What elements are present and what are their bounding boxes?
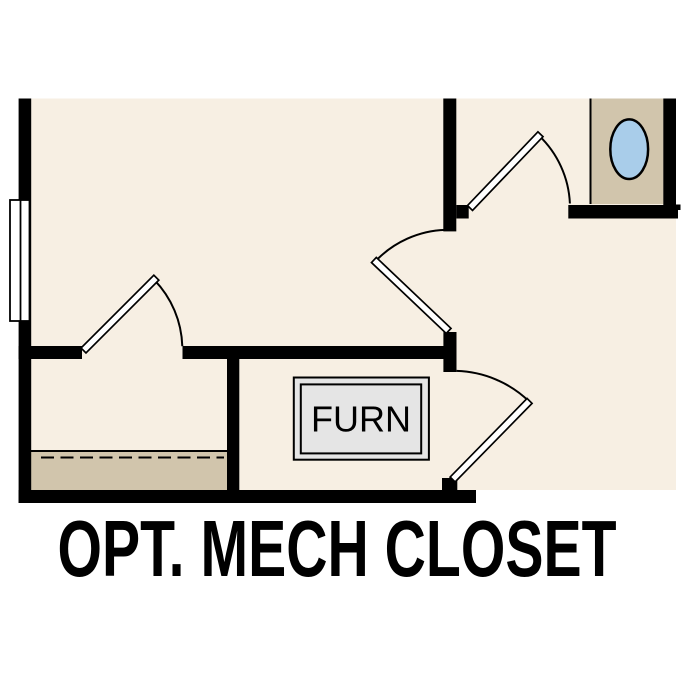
svg-text:OPT. MECH CLOSET: OPT. MECH CLOSET — [58, 504, 617, 593]
svg-text:FURN: FURN — [311, 399, 411, 440]
